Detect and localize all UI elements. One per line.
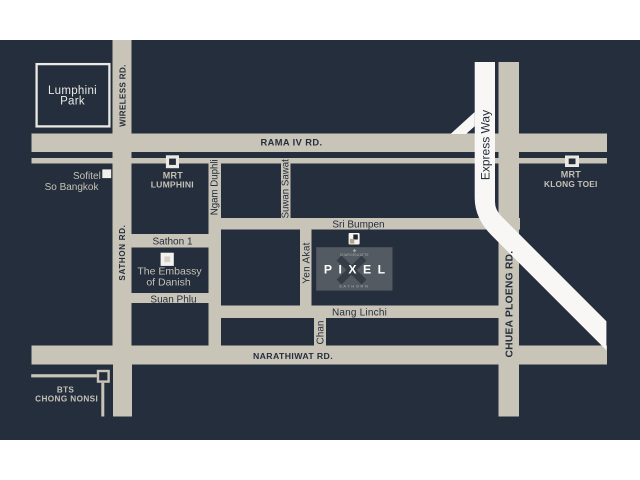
svg-text:BTS: BTS <box>57 386 75 395</box>
svg-text:KLONG TOEI: KLONG TOEI <box>544 179 597 189</box>
svg-text:CHUEA PLOENG RD.: CHUEA PLOENG RD. <box>505 251 516 358</box>
svg-text:Suan Phlu: Suan Phlu <box>150 295 196 306</box>
svg-text:Express Way: Express Way <box>479 110 493 180</box>
svg-text:Yen Akat: Yen Akat <box>302 242 313 284</box>
svg-text:Park: Park <box>60 95 85 107</box>
svg-text:So Bangkok: So Bangkok <box>45 182 100 193</box>
svg-text:LUMPHINI: LUMPHINI <box>151 179 194 189</box>
svg-text:CHONG NONSI: CHONG NONSI <box>35 395 98 404</box>
svg-text:Sofitel: Sofitel <box>73 171 101 182</box>
svg-text:SATHON RD.: SATHON RD. <box>118 224 127 280</box>
svg-text:Sathon 1: Sathon 1 <box>152 237 192 248</box>
svg-text:PIXEL: PIXEL <box>324 263 392 277</box>
svg-text:Sri Bumpen: Sri Bumpen <box>332 220 384 231</box>
svg-text:NARATHIWAT RD.: NARATHIWAT RD. <box>253 351 333 361</box>
svg-text:Ngam Duphli: Ngam Duphli <box>210 159 221 215</box>
svg-text:SATHORN: SATHORN <box>339 284 369 289</box>
svg-text:WIRELESS RD.: WIRELESS RD. <box>119 64 128 127</box>
svg-text:Chan: Chan <box>316 321 327 345</box>
svg-text:CHAROENJATTE: CHAROENJATTE <box>340 253 369 257</box>
svg-text:Suwan Sawat: Suwan Sawat <box>281 159 292 219</box>
svg-text:RAMA IV RD.: RAMA IV RD. <box>261 138 323 148</box>
svg-text:of Danish: of Danish <box>146 276 191 288</box>
svg-text:Nang Linchi: Nang Linchi <box>332 308 387 319</box>
svg-text:MRT: MRT <box>561 169 582 179</box>
